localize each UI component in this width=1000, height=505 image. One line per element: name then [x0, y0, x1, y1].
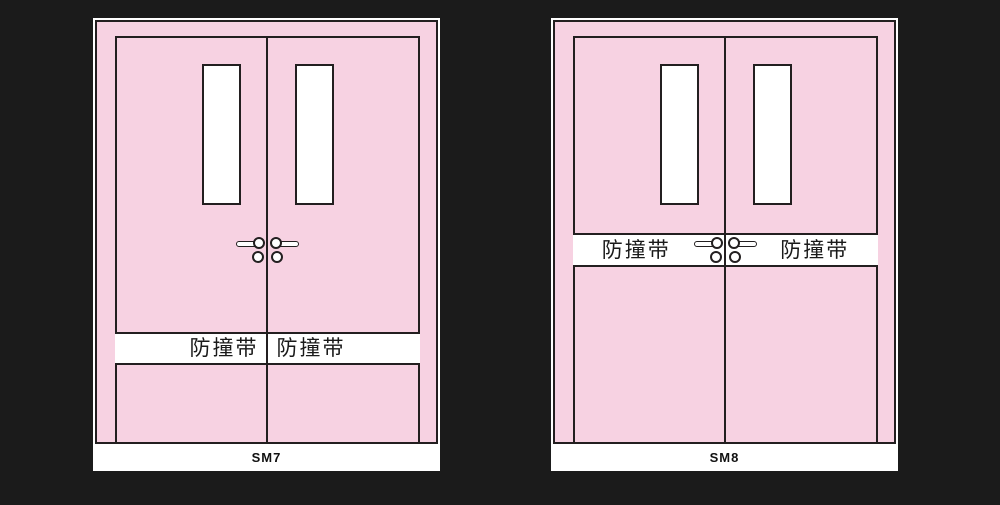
door-elevation-card-sm7: 防撞带 防撞带 SM7	[93, 18, 440, 471]
door-code-label: SM7	[93, 444, 440, 471]
door-handle-icon	[711, 237, 723, 249]
strip-label-left: 防撞带	[190, 338, 259, 359]
door-handle-icon	[253, 237, 265, 249]
door-code-label: SM8	[551, 444, 898, 471]
strip-label-left: 防撞带	[602, 240, 671, 261]
vision-panel-left	[660, 64, 699, 205]
strip-left-leaf: 防撞带	[573, 235, 726, 265]
strip-label-right: 防撞带	[780, 240, 849, 261]
door-meeting-stile-line	[724, 36, 726, 444]
lock-cylinder-icon	[252, 251, 264, 263]
strip-right-leaf: 防撞带	[268, 334, 421, 363]
strip-left-leaf: 防撞带	[115, 334, 268, 363]
door-handle-icon	[270, 237, 282, 249]
vision-panel-right	[753, 64, 792, 205]
door-handle-icon	[728, 237, 740, 249]
door-elevation-card-sm8: 防撞带 防撞带 SM8	[551, 18, 898, 471]
strip-right-leaf: 防撞带	[726, 235, 879, 265]
vision-panel-left	[202, 64, 241, 205]
lock-cylinder-icon	[710, 251, 722, 263]
lock-cylinder-icon	[729, 251, 741, 263]
door-meeting-stile-line	[266, 36, 268, 444]
lock-cylinder-icon	[271, 251, 283, 263]
strip-label-right: 防撞带	[277, 338, 346, 359]
vision-panel-right	[295, 64, 334, 205]
